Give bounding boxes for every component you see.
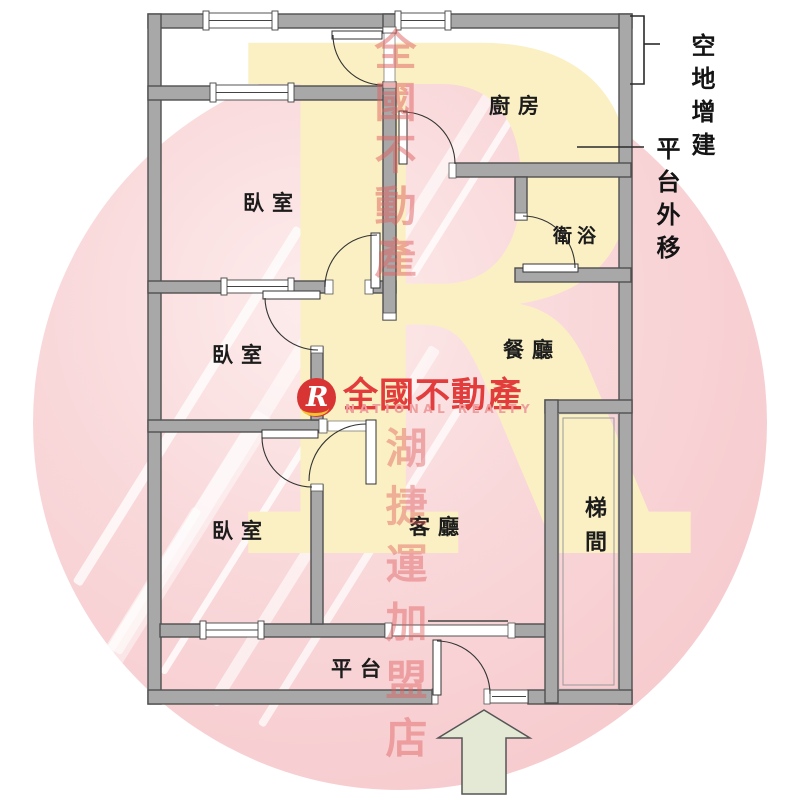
realty-logo-icon: R bbox=[297, 378, 336, 417]
watermark-column-bottom: 湖捷運加盟店 bbox=[373, 426, 434, 774]
room-label-stairwell: 梯間 bbox=[578, 496, 610, 564]
room-label-bedroom2: 臥室 bbox=[212, 339, 270, 369]
annotation-vacant-land-addition: 空地增建 bbox=[684, 33, 719, 165]
door bbox=[433, 640, 490, 695]
watermark-column-top: 全國不動產 bbox=[362, 28, 423, 288]
annotation-platform-moved-out: 平台外移 bbox=[649, 136, 684, 268]
floor-plan-canvas: R bbox=[0, 0, 796, 800]
logo-swoosh-icon bbox=[301, 400, 329, 416]
entrance-arrow-icon bbox=[438, 710, 530, 794]
window bbox=[203, 11, 278, 30]
room-label-bedroom3: 臥室 bbox=[212, 515, 270, 545]
window bbox=[490, 690, 528, 703]
room-label-bathroom: 衛浴 bbox=[553, 221, 601, 248]
window bbox=[200, 621, 264, 639]
realty-logo: R 全國不動產 NATIONAL REALTY bbox=[295, 358, 525, 424]
logo-brand-english: NATIONAL REALTY bbox=[345, 402, 534, 416]
room-label-bedroom1: 臥室 bbox=[243, 187, 301, 217]
window bbox=[210, 83, 294, 102]
room-label-kitchen: 廚房 bbox=[489, 90, 547, 120]
door bbox=[263, 291, 320, 350]
